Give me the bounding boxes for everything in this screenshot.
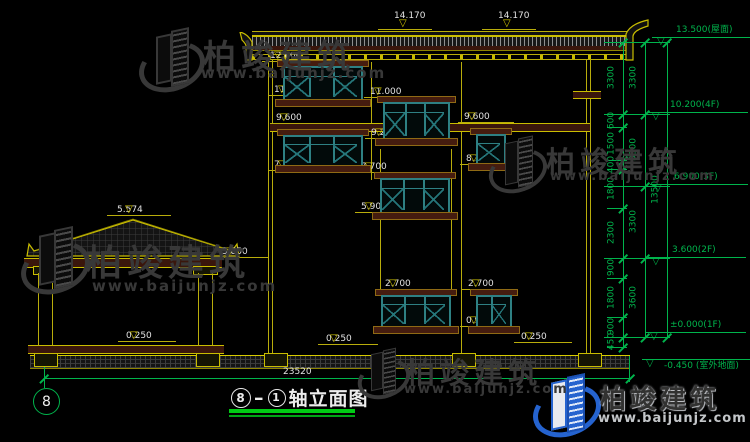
dim-extension-line [607,278,627,279]
elevation-triangle-icon: ▽ [125,205,133,215]
level-label: 3.600(2F) [672,246,716,255]
brand-logo: 柏竣建筑 www.baijunjz.com [536,370,750,440]
level-marker-line [652,37,750,38]
elevation-marker-line [482,29,536,30]
column-base [578,353,602,367]
dimension-chain-line [667,42,668,337]
drawing-title: 8–1轴立面图 [231,384,369,411]
window-casement-mark [333,145,357,163]
column-base [34,353,58,367]
title-axis-end: 1 [268,389,286,407]
elevation-marker-line [458,122,514,123]
logo-url-text: www.baijunjz.com [598,411,747,426]
level-extension-line [604,258,670,259]
watermark-building-icon [24,226,87,293]
elevation-triangle-icon: ▽ [375,128,383,138]
dimension-label: 3600 [629,267,640,327]
level-triangle-icon: ▽ [646,359,654,369]
wall-wing-left [461,62,462,355]
window-casement-mark [385,113,405,136]
cad-elevation-drawing: 23520 8 8–1轴立面图 柏竣建筑 www.baijunjz.com 14… [0,0,750,442]
title-underline-thin [229,415,355,417]
level-extension-line [604,42,670,43]
title-underline-thick [229,409,355,413]
dim-extension-line [607,127,627,128]
dimension-label: 450 [607,312,618,372]
window-sill-board [375,138,458,146]
window-sill-board [275,165,371,173]
dim-extension-line [607,317,627,318]
elevation-marker-line [514,342,572,343]
ground-dim-label: 23520 [283,368,312,377]
level-marker-line [646,332,746,333]
window-mullion [403,180,405,210]
level-extension-line [604,186,670,187]
column-base [196,353,220,367]
dim-extension-line [607,347,627,348]
watermark-building-icon [360,347,408,398]
watermark-url-text: www.baijunjz.com [404,382,569,397]
level-label: 13.500(屋面) [676,26,733,35]
title-text: 轴立面图 [289,384,369,411]
window-sill-board [275,99,371,107]
watermark-building-icon [492,135,546,193]
level-label: 10.200(4F) [670,101,719,110]
level-marker-line [648,112,748,113]
window-casement-mark [423,189,444,210]
watermark-url-text: www.baijunjz.com [201,64,386,82]
bay-stack-edge-right [451,149,452,295]
elevation-triangle-icon: ▽ [280,113,288,123]
window-sill-board [468,326,520,334]
elevation-marker-line [378,29,432,30]
window-casement-mark [492,305,506,324]
title-separator: – [254,387,265,409]
window-mullion [404,297,406,324]
window-sill-board [373,326,459,334]
level-extension-line [604,337,670,338]
dimension-label: 3300 [629,192,640,252]
elevation-triangle-icon: ▽ [468,112,476,122]
axis-bubble-8: 8 [33,388,60,415]
window-mullion [405,104,407,136]
dimension-chain-line [623,42,624,347]
level-marker-line [650,184,748,185]
elevation-triangle-icon: ▽ [389,279,397,289]
wall-right-outer [590,60,591,355]
wall-right-inner [586,60,587,355]
elevation-triangle-icon: ▽ [130,331,138,341]
dimension-label: 3300 [629,48,640,108]
wing-ledge [573,91,601,99]
column-base [264,353,288,367]
level-marker-line [642,359,750,360]
dim-extension-line [607,208,627,209]
elevation-marker-line [107,215,171,216]
level-extension-line [604,114,670,115]
window-casement-mark [285,145,309,163]
level-label: -0.450 (室外地面) [664,362,739,371]
elevation-triangle-icon: ▽ [399,19,407,29]
window-casement-mark [383,305,404,324]
elevation-triangle-icon: ▽ [503,19,511,29]
dimension-chain-line [645,42,646,337]
window-mullion [309,137,311,163]
watermark-url-text: www.baijunjz.com [550,169,715,184]
elevation-marker-line [270,123,330,124]
window-sill-board [372,212,458,220]
elevation-triangle-icon: ▽ [330,334,338,344]
title-axis-start: 8 [231,388,251,408]
watermark-url-text: www.baijunjz.com [92,277,277,295]
elevation-marker-line [318,344,378,345]
window-casement-mark [424,113,444,136]
elevation-triangle-icon: ▽ [525,332,533,342]
elevation-marker-line [118,341,176,342]
window-casement-mark [382,189,403,210]
wall-left-outer [268,60,269,355]
wall-left-inner [272,60,273,355]
window-casement-mark [424,305,445,324]
watermark-building-icon [142,27,202,91]
level-label: ±0.000(1F) [670,321,721,330]
elevation-triangle-icon: ▽ [365,202,373,212]
elevation-triangle-icon: ▽ [472,279,480,289]
